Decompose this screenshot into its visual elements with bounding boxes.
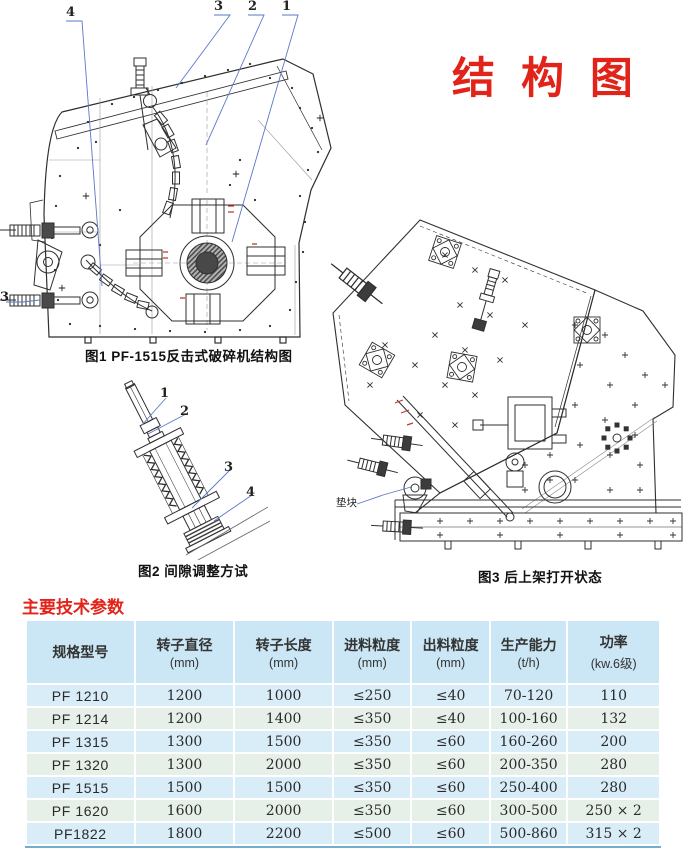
figure1-callout-2: 2 bbox=[248, 0, 257, 13]
cell-rotor-diameter: 1800 bbox=[136, 823, 234, 844]
cell-feed-size: ≤350 bbox=[334, 800, 410, 821]
cell-power: 200 bbox=[568, 731, 659, 752]
figure2-callout-2: 2 bbox=[180, 405, 189, 418]
cell-output-size: ≤60 bbox=[412, 731, 488, 752]
cell-capacity: 300-500 bbox=[491, 800, 566, 821]
cell-capacity: 200-350 bbox=[491, 754, 566, 775]
cell-output-size: ≤60 bbox=[412, 823, 488, 844]
cell-rotor-diameter: 1200 bbox=[136, 685, 234, 706]
page-title: 结 构 图 bbox=[452, 44, 640, 106]
figure2-callout-3: 3 bbox=[224, 461, 233, 474]
impact-apron-upper bbox=[144, 88, 181, 218]
col-header-feed-size: 进料粒度(mm) bbox=[334, 621, 410, 683]
cell-rotor-length: 2200 bbox=[235, 823, 332, 844]
table-row: PF 1315 1300 1500 ≤350 ≤60 160-260 200 bbox=[27, 731, 659, 752]
bolt-circle-pattern bbox=[602, 423, 633, 454]
figure3-drawing bbox=[325, 195, 691, 565]
table-row: PF 1515 1500 1500 ≤350 ≤60 250-400 280 bbox=[27, 777, 659, 798]
cell-capacity: 250-400 bbox=[491, 777, 566, 798]
cell-power: 280 bbox=[568, 754, 659, 775]
spec-table-wrapper: 规格型号 转子直径(mm) 转子长度(mm) 进料粒度(mm) 出料粒度(mm)… bbox=[25, 619, 661, 848]
cell-model: PF 1210 bbox=[27, 685, 134, 706]
figure2-callout-4: 4 bbox=[246, 486, 255, 499]
cell-power: 315 × 2 bbox=[568, 823, 659, 844]
hydraulic-strut bbox=[397, 396, 514, 521]
cell-rotor-length: 1000 bbox=[235, 685, 332, 706]
col-header-rotor-length: 转子长度(mm) bbox=[235, 621, 332, 683]
figure1-callout-1: 1 bbox=[282, 0, 291, 13]
cell-rotor-diameter: 1600 bbox=[136, 800, 234, 821]
figure3-rear-frame-open: 垫块 bbox=[325, 195, 691, 565]
cell-feed-size: ≤250 bbox=[334, 685, 410, 706]
table-row: PF1822 1800 2200 ≤500 ≤60 500-860 315 × … bbox=[27, 823, 659, 844]
cell-power: 280 bbox=[568, 777, 659, 798]
figure3-caption: 图3 后上架打开状态 bbox=[478, 566, 602, 586]
cell-capacity: 70-120 bbox=[491, 685, 566, 706]
cell-power: 110 bbox=[568, 685, 659, 706]
cell-rotor-length: 2000 bbox=[235, 800, 332, 821]
cell-output-size: ≤60 bbox=[412, 800, 488, 821]
cell-rotor-diameter: 1300 bbox=[136, 731, 234, 752]
figure2-leader-lines bbox=[142, 398, 252, 521]
figure2-gap-adjustment: 1 2 3 4 bbox=[100, 378, 275, 560]
cell-output-size: ≤40 bbox=[412, 685, 488, 706]
crusher-housing bbox=[30, 59, 331, 343]
opened-rear-frame-plate bbox=[333, 220, 595, 493]
cell-output-size: ≤40 bbox=[412, 708, 488, 729]
bearing-box bbox=[473, 397, 566, 449]
spec-table: 规格型号 转子直径(mm) 转子长度(mm) 进料粒度(mm) 出料粒度(mm)… bbox=[25, 619, 661, 846]
cell-model: PF 1320 bbox=[27, 754, 134, 775]
fixed-frame-plate bbox=[415, 290, 675, 513]
cell-power: 132 bbox=[568, 708, 659, 729]
cell-rotor-length: 1500 bbox=[235, 731, 332, 752]
figure1-callout-3: 3 bbox=[214, 0, 223, 13]
cell-feed-size: ≤500 bbox=[334, 823, 410, 844]
tension-spring-assemblies bbox=[0, 222, 98, 308]
figure1-structure-diagram: 4 3 2 1 3 bbox=[0, 0, 340, 345]
cell-output-size: ≤60 bbox=[412, 754, 488, 775]
table-row: PF 1214 1200 1400 ≤350 ≤40 100-160 132 bbox=[27, 708, 659, 729]
figure1-callout-4: 4 bbox=[66, 6, 75, 19]
cell-rotor-length: 2000 bbox=[235, 754, 332, 775]
cell-model: PF 1515 bbox=[27, 777, 134, 798]
pad-block-label: 垫块 bbox=[336, 495, 357, 510]
cell-output-size: ≤60 bbox=[412, 777, 488, 798]
figure1-caption: 图1 PF-1515反击式破碎机结构图 bbox=[85, 345, 293, 365]
cell-rotor-length: 1500 bbox=[235, 777, 332, 798]
base-frame bbox=[395, 500, 682, 549]
figure2-caption: 图2 间隙调整方试 bbox=[138, 560, 248, 580]
cell-feed-size: ≤350 bbox=[334, 731, 410, 752]
col-header-model: 规格型号 bbox=[27, 621, 134, 683]
product-spec-page: { "page": { "title": "结 构 图" }, "figure1… bbox=[0, 0, 691, 855]
cell-power: 250 × 2 bbox=[568, 800, 659, 821]
cell-rotor-length: 1400 bbox=[235, 708, 332, 729]
table-header-row: 规格型号 转子直径(mm) 转子长度(mm) 进料粒度(mm) 出料粒度(mm)… bbox=[27, 621, 659, 683]
cell-model: PF 1315 bbox=[27, 731, 134, 752]
cell-capacity: 100-160 bbox=[491, 708, 566, 729]
cell-rotor-diameter: 1500 bbox=[136, 777, 234, 798]
table-row: PF 1320 1300 2000 ≤350 ≤60 200-350 280 bbox=[27, 754, 659, 775]
figure1-drawing bbox=[0, 0, 340, 345]
cell-capacity: 160-260 bbox=[491, 731, 566, 752]
table-row: PF 1620 1600 2000 ≤350 ≤60 300-500 250 ×… bbox=[27, 800, 659, 821]
rotor-assembly bbox=[126, 199, 285, 324]
table-row: PF 1210 1200 1000 ≤250 ≤40 70-120 110 bbox=[27, 685, 659, 706]
section-heading: 主要技术参数 bbox=[22, 593, 124, 618]
x-bolt-marks bbox=[367, 252, 527, 427]
impact-apron-lower bbox=[81, 255, 158, 318]
cell-model: PF1822 bbox=[27, 823, 134, 844]
cell-capacity: 500-860 bbox=[491, 823, 566, 844]
figure1-callout-left-3: 3 bbox=[0, 291, 9, 304]
cell-model: PF 1620 bbox=[27, 800, 134, 821]
pedestal-and-ring bbox=[506, 453, 571, 503]
flange-fittings bbox=[359, 236, 600, 382]
adjustment-rod-assembly bbox=[102, 378, 235, 555]
col-header-capacity: 生产能力(t/h) bbox=[491, 621, 566, 683]
cell-feed-size: ≤350 bbox=[334, 777, 410, 798]
cell-rotor-diameter: 1200 bbox=[136, 708, 234, 729]
cell-feed-size: ≤350 bbox=[334, 708, 410, 729]
cell-feed-size: ≤350 bbox=[334, 754, 410, 775]
col-header-output-size: 出料粒度(mm) bbox=[412, 621, 488, 683]
col-header-power: 功率(kw.6级) bbox=[568, 621, 659, 683]
figure2-callout-1: 1 bbox=[160, 387, 169, 400]
col-header-rotor-diameter: 转子直径(mm) bbox=[136, 621, 234, 683]
pivot-and-pad bbox=[403, 477, 431, 513]
cell-rotor-diameter: 1300 bbox=[136, 754, 234, 775]
cell-model: PF 1214 bbox=[27, 708, 134, 729]
